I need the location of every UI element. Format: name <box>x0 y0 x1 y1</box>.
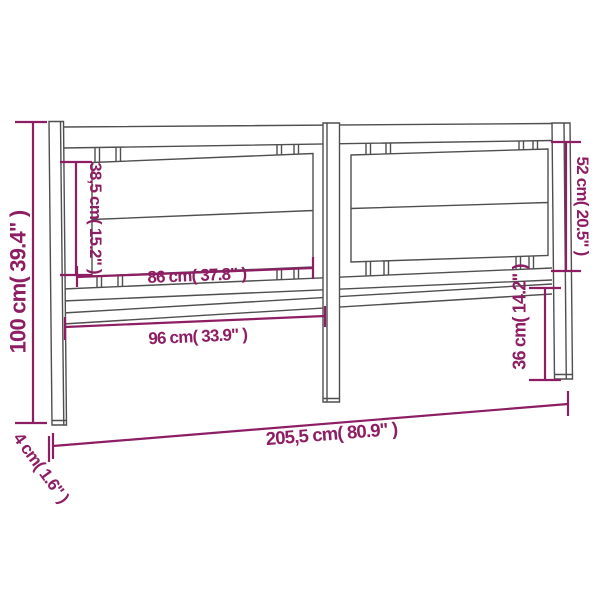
right-panel <box>351 149 548 262</box>
label-board-thickness: 4 cm( 1.6" ) <box>9 429 72 506</box>
top-rail <box>63 124 552 149</box>
label-left-panel-height: 38,5 cm( 15.2" ) <box>86 162 105 274</box>
headboard-dimension-drawing: 100 cm( 39.4" ) 38,5 cm( 15.2" ) 52 cm( … <box>0 0 600 600</box>
center-post <box>323 123 340 402</box>
right-leg <box>552 123 573 379</box>
label-lower-inner-width: 96 cm( 33.9" ) <box>148 325 248 348</box>
label-right-panel-height: 52 cm( 20.5" ) <box>573 157 592 256</box>
label-overall-height: 100 cm( 39.4" ) <box>6 210 31 353</box>
upper-lower-rail <box>63 268 552 301</box>
left-panel <box>92 154 313 277</box>
dimension-labels: 100 cm( 39.4" ) 38,5 cm( 15.2" ) 52 cm( … <box>6 157 592 507</box>
label-upper-inner-width: 86 cm( 37.8" ) <box>147 264 247 287</box>
headboard-structure <box>49 122 573 426</box>
label-leg-lower-height: 36 cm( 14.2" ) <box>509 264 529 370</box>
product-dimension-diagram: 100 cm( 39.4" ) 38,5 cm( 15.2" ) 52 cm( … <box>0 0 600 600</box>
label-overall-width: 205,5 cm( 80.9" ) <box>265 418 399 449</box>
left-leg <box>49 122 67 426</box>
